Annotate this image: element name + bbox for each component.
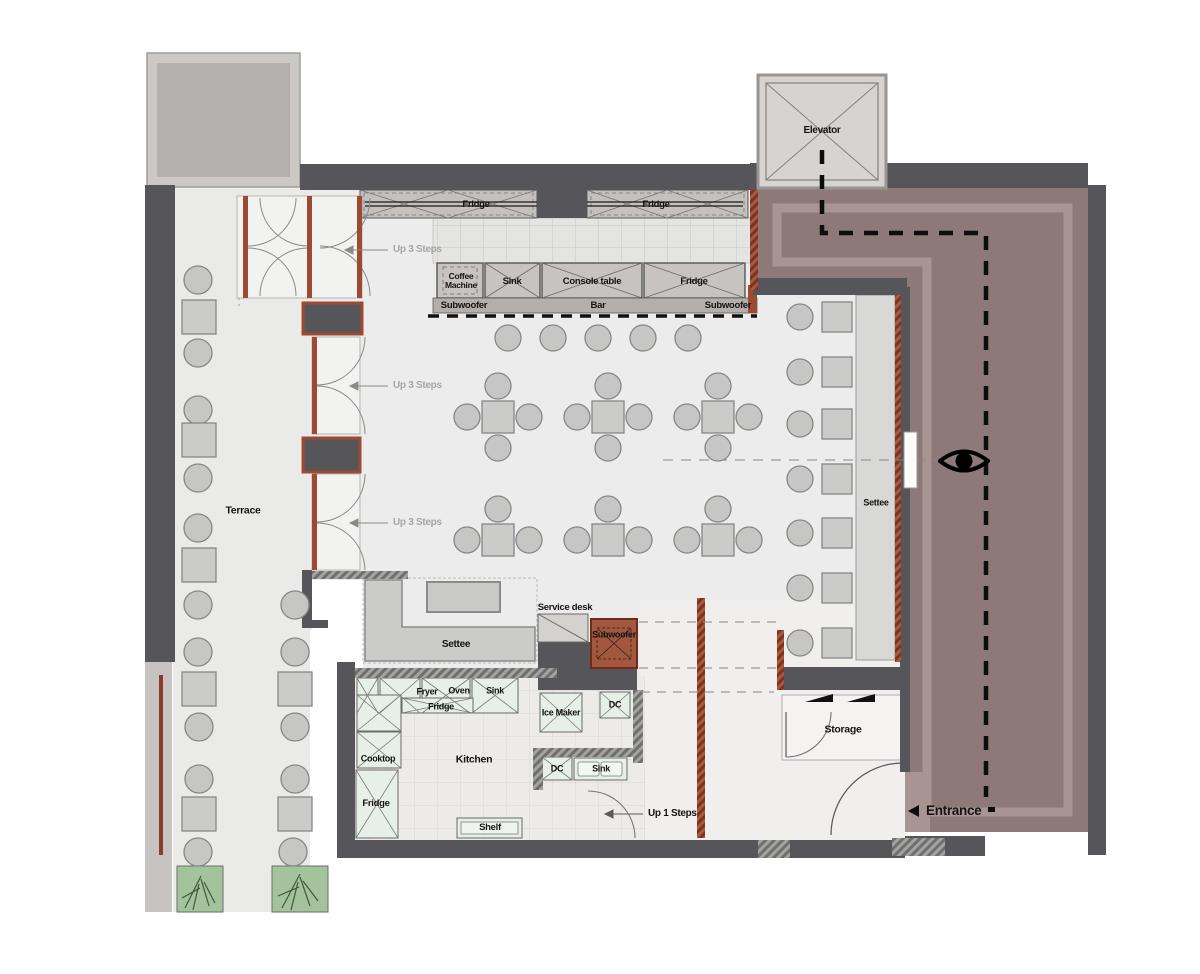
- bar-stool: [585, 325, 611, 351]
- settee-chair: [787, 520, 813, 546]
- bar-stool: [630, 325, 656, 351]
- wall-dining-topright: [753, 278, 907, 295]
- dining-chair: [705, 496, 731, 522]
- terrace-table: [278, 672, 312, 706]
- settee-chair: [787, 466, 813, 492]
- terrace-table: [182, 548, 216, 582]
- dining-chair: [674, 404, 700, 430]
- dining-chair: [595, 496, 621, 522]
- dining-table: [482, 524, 514, 556]
- settee-table: [822, 302, 852, 332]
- dining-chair: [516, 404, 542, 430]
- right-wall-door: [904, 432, 917, 488]
- dining-table: [592, 401, 624, 433]
- dining-chair: [626, 404, 652, 430]
- terrace-chair: [185, 765, 213, 793]
- floor-plan: FridgeFridgeUp 3 StepsUp 3 StepsUp 3 Ste…: [0, 0, 1200, 974]
- storage-floor: [782, 695, 903, 760]
- settee-left-zone: [363, 578, 537, 663]
- coffee-machine-box: [437, 263, 483, 298]
- terrace-chair: [184, 838, 212, 866]
- terrace-table: [182, 423, 216, 457]
- storage-top-wall: [778, 667, 903, 690]
- wall-left: [145, 185, 175, 662]
- dining-table: [592, 524, 624, 556]
- dining-chair: [485, 435, 511, 461]
- terrace-chair: [281, 591, 309, 619]
- settee-chair: [787, 359, 813, 385]
- settee-table: [822, 628, 852, 658]
- dining-table: [702, 524, 734, 556]
- dining-table: [482, 401, 514, 433]
- settee-table: [822, 357, 852, 387]
- dining-chair: [564, 404, 590, 430]
- terrace-chair: [279, 838, 307, 866]
- dining-chair: [485, 373, 511, 399]
- terrace-chair: [184, 514, 212, 542]
- door-pier-1: [303, 303, 362, 334]
- terrace-table: [182, 672, 216, 706]
- terrace-chair: [184, 266, 212, 294]
- settee-table: [822, 464, 852, 494]
- wall-sw-2: [302, 620, 328, 628]
- terrace-chair: [184, 591, 212, 619]
- wall-left-low: [145, 662, 172, 912]
- terrace-table: [278, 797, 312, 831]
- guest-path-end-dash: [988, 807, 995, 812]
- kitchen-zone: [355, 676, 645, 840]
- wall-kitchen-left: [337, 662, 355, 852]
- dining-chair: [595, 373, 621, 399]
- dining-chair: [485, 496, 511, 522]
- settee-table: [822, 409, 852, 439]
- dining-chair: [626, 527, 652, 553]
- bar-stool: [495, 325, 521, 351]
- elevator: [758, 75, 886, 188]
- storage-room: [778, 667, 903, 760]
- settee-chair: [787, 304, 813, 330]
- dining-chair: [736, 527, 762, 553]
- service-desk: [538, 614, 588, 642]
- settee-table: [822, 573, 852, 603]
- settee-right: [856, 295, 895, 660]
- bar-stool: [540, 325, 566, 351]
- terrace-chair: [281, 713, 309, 741]
- door-unit-a: [237, 196, 362, 298]
- wall-top-right: [883, 163, 1088, 188]
- dining-table: [702, 401, 734, 433]
- terrace-chair: [184, 339, 212, 367]
- terrace-chair: [281, 638, 309, 666]
- door-pier-2: [303, 438, 360, 472]
- terrace-chair: [184, 396, 212, 424]
- subwoofer-mid-unit: [591, 619, 637, 668]
- wall-right: [1088, 185, 1106, 855]
- bar-base-strip: [433, 298, 757, 313]
- floor-plan-drawing: [0, 0, 1200, 974]
- terrace-chair: [184, 638, 212, 666]
- wall-bottom: [337, 840, 905, 858]
- terrace-rail: [159, 675, 163, 855]
- dining-chair: [454, 404, 480, 430]
- settee-chair: [787, 630, 813, 656]
- terrace-chair: [184, 464, 212, 492]
- planter-right: [272, 866, 328, 912]
- dining-chair: [564, 527, 590, 553]
- terrace-table: [182, 300, 216, 334]
- wall-top-main: [300, 164, 757, 190]
- bar-stool: [675, 325, 701, 351]
- roof-block: [147, 53, 300, 187]
- dining-chair: [595, 435, 621, 461]
- wall-fridge-pier: [537, 188, 587, 218]
- dining-chair: [736, 404, 762, 430]
- dining-chair: [674, 527, 700, 553]
- dining-chair: [705, 373, 731, 399]
- wall-right-inner: [900, 287, 910, 772]
- settee-table: [427, 582, 500, 612]
- settee-table: [822, 518, 852, 548]
- dining-chair: [516, 527, 542, 553]
- entrance-opening: [905, 772, 930, 832]
- settee-chair: [787, 411, 813, 437]
- planter-left: [177, 866, 223, 912]
- terrace-chair: [281, 765, 309, 793]
- terrace-table: [182, 797, 216, 831]
- dining-chair: [454, 527, 480, 553]
- terrace-chair: [185, 713, 213, 741]
- dining-chair: [705, 435, 731, 461]
- settee-chair: [787, 575, 813, 601]
